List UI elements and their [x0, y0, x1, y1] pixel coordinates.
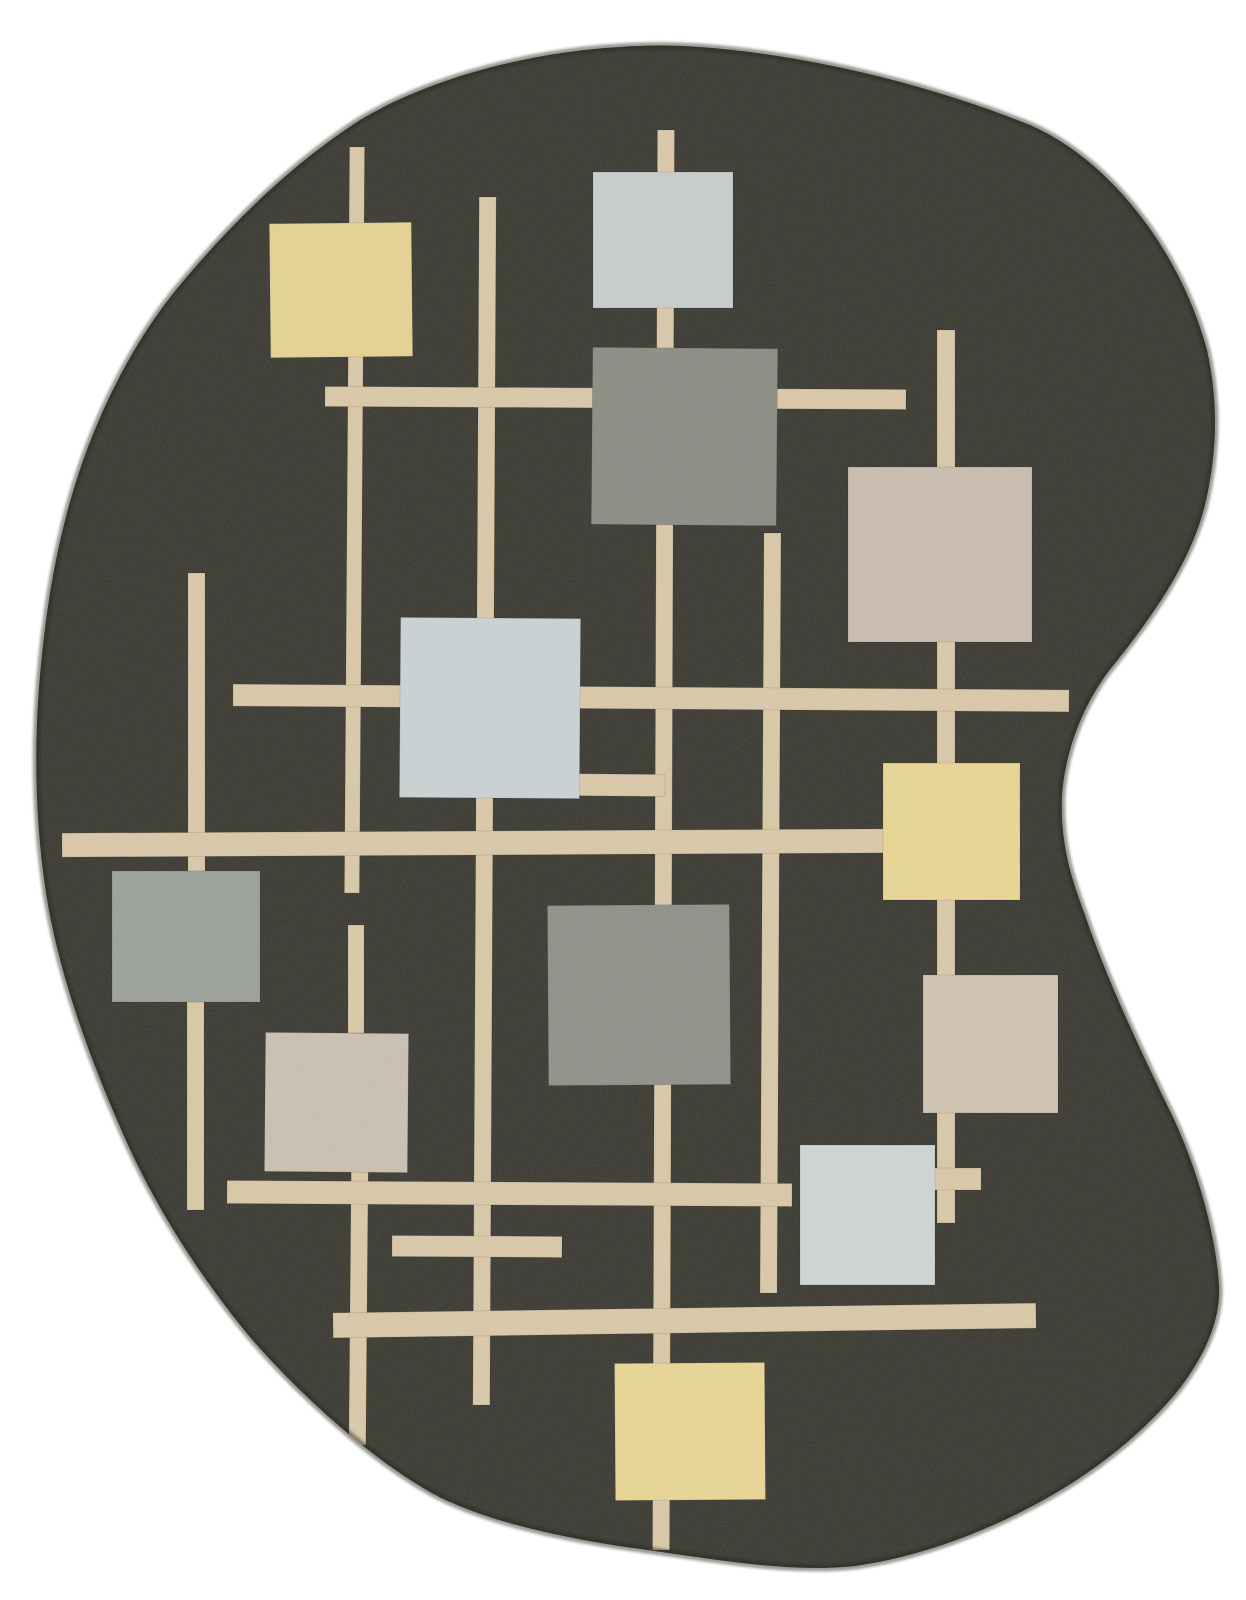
- rug-product-photo: [0, 0, 1246, 1600]
- rug-illustration: [0, 0, 1246, 1600]
